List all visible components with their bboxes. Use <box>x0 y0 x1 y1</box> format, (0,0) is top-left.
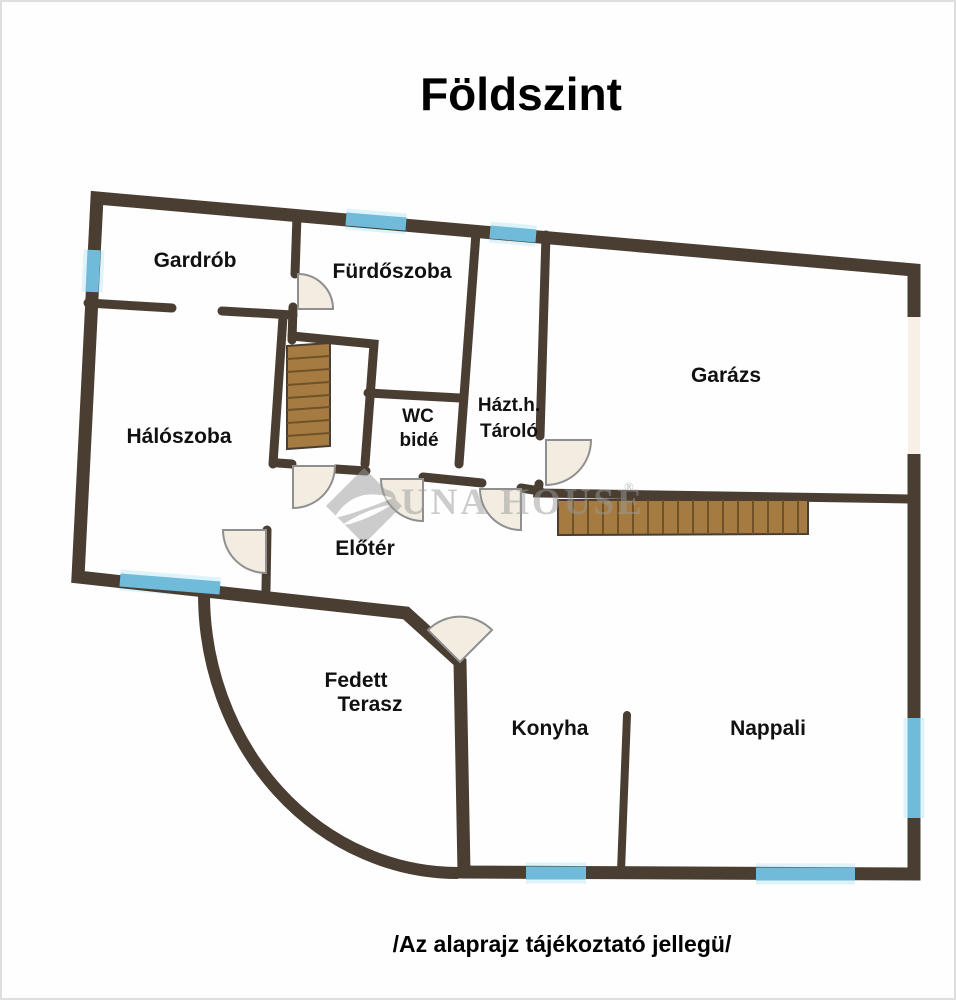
room-label-konyha: Konyha <box>511 717 588 740</box>
windows-layer <box>92 219 914 874</box>
garage-door-opening <box>908 316 920 455</box>
room-label-wc-line1: WC <box>402 406 434 427</box>
window-haloszoba <box>120 580 220 588</box>
window-glow-layer <box>92 219 914 874</box>
outer-boundary-wall <box>78 198 914 874</box>
door-furdoszoba <box>298 274 333 309</box>
room-label-terasz-line1: Fedett <box>325 669 388 692</box>
door-stair-hall <box>293 466 335 508</box>
window-left <box>92 250 94 292</box>
room-label-terasz-line2: Terasz <box>338 693 403 716</box>
room-label-wc-line2: bidé <box>399 430 438 451</box>
window-top-1 <box>346 219 406 224</box>
room-label-furdoszoba: Fürdőszoba <box>333 260 452 283</box>
interior-walls <box>88 216 910 871</box>
watermark-brand: DUNA HOUSE <box>371 482 645 523</box>
disclaimer-note: /Az alaprajz tájékoztató jellegü/ <box>393 931 732 957</box>
terrace-curved-wall <box>204 594 458 873</box>
watermark-registered-mark: ® <box>624 479 634 494</box>
window-top-2 <box>490 232 536 236</box>
room-label-gardrob: Gardrób <box>154 249 237 272</box>
room-label-nappali: Nappali <box>730 717 806 740</box>
outer-walls <box>78 198 914 874</box>
room-label-eloter: Előtér <box>335 537 395 560</box>
door-haloszoba <box>223 530 266 573</box>
room-label-garazs: Garázs <box>691 364 761 387</box>
floor-plan-svg: Földszint <box>2 2 956 1000</box>
room-label-haloszoba: Hálószoba <box>126 425 231 448</box>
floor-plan-page: Földszint <box>0 0 956 1000</box>
room-label-tarolo-line1: Házt.h. <box>478 395 540 416</box>
door-garazs <box>546 440 591 485</box>
door-terasz <box>428 617 492 662</box>
room-label-tarolo-line2: Tároló <box>480 421 538 442</box>
page-title: Földszint <box>420 68 622 120</box>
